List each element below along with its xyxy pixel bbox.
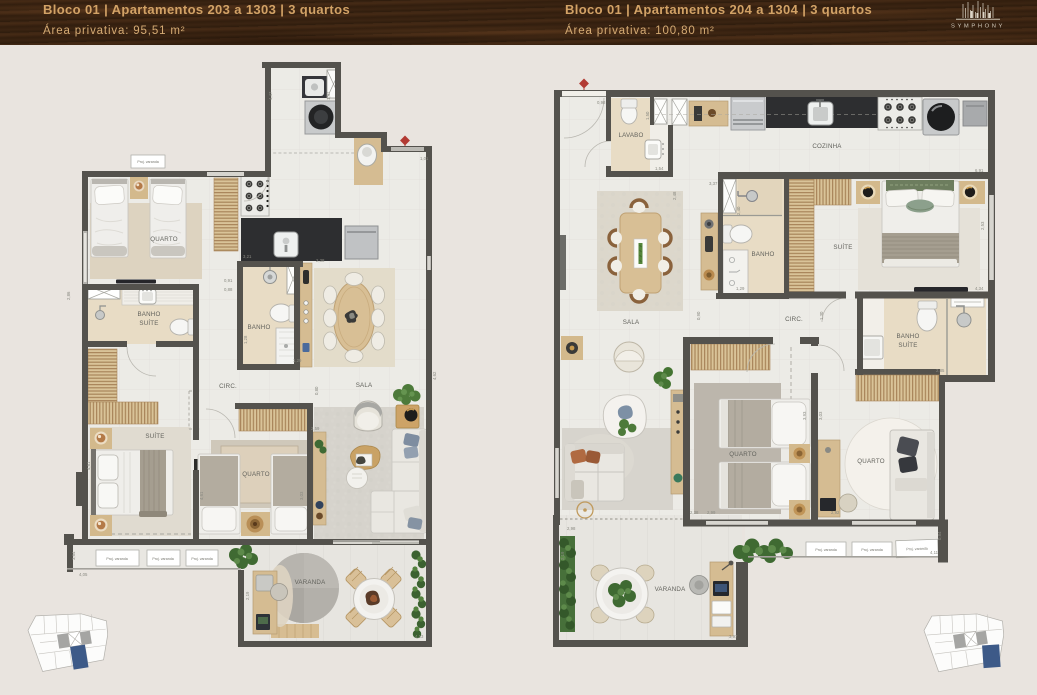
svg-text:4,61: 4,61 [86, 461, 91, 470]
svg-text:2,59: 2,59 [311, 426, 320, 431]
svg-text:SUÍTE: SUÍTE [833, 244, 852, 251]
svg-text:2,19: 2,19 [245, 591, 250, 600]
svg-text:2,19: 2,19 [560, 551, 565, 560]
svg-text:1,54: 1,54 [655, 166, 664, 171]
svg-text:Proj. varanda: Proj. varanda [106, 557, 127, 561]
svg-text:4,47: 4,47 [268, 91, 273, 100]
svg-text:3,37: 3,37 [709, 181, 718, 186]
svg-text:QUARTO: QUARTO [857, 458, 884, 465]
svg-text:3,97: 3,97 [729, 634, 738, 639]
svg-text:1,29: 1,29 [736, 286, 745, 291]
svg-text:SALA: SALA [356, 382, 373, 389]
svg-text:2,85: 2,85 [936, 368, 945, 373]
svg-text:QUARTO: QUARTO [242, 471, 269, 478]
svg-text:2,40: 2,40 [736, 206, 741, 215]
svg-text:3,03: 3,03 [299, 491, 304, 500]
svg-text:SALA: SALA [623, 319, 640, 326]
svg-text:1,01: 1,01 [420, 156, 429, 161]
svg-text:BANHO: BANHO [247, 324, 270, 331]
svg-text:4,11: 4,11 [930, 550, 939, 555]
svg-text:3,21: 3,21 [243, 254, 252, 259]
svg-text:0,80: 0,80 [314, 386, 319, 395]
svg-text:4,13: 4,13 [415, 634, 424, 639]
svg-text:1,28: 1,28 [243, 335, 248, 344]
svg-text:BANHO: BANHO [137, 311, 160, 318]
svg-text:4,62: 4,62 [432, 371, 437, 380]
svg-text:1,30: 1,30 [819, 311, 824, 320]
svg-text:CIRC.: CIRC. [785, 316, 803, 323]
svg-text:2,53: 2,53 [980, 221, 985, 230]
svg-text:1,29: 1,29 [293, 358, 302, 363]
svg-text:Proj. varanda: Proj. varanda [861, 548, 882, 552]
svg-text:2,92: 2,92 [831, 510, 840, 515]
svg-text:Proj. varanda: Proj. varanda [906, 547, 928, 552]
svg-text:3,03: 3,03 [818, 411, 823, 420]
svg-text:2,38: 2,38 [690, 510, 699, 515]
svg-text:QUARTO: QUARTO [150, 236, 177, 243]
svg-text:3,64: 3,64 [71, 551, 76, 560]
svg-text:1,47: 1,47 [326, 91, 331, 100]
svg-text:0,90: 0,90 [696, 311, 701, 320]
svg-text:2,86: 2,86 [66, 291, 71, 300]
svg-text:4,61: 4,61 [199, 491, 204, 500]
svg-text:QUARTO: QUARTO [729, 451, 756, 458]
svg-text:0,88: 0,88 [224, 287, 233, 292]
svg-text:0,84: 0,84 [937, 531, 942, 540]
svg-text:Proj. varanda: Proj. varanda [815, 548, 836, 552]
svg-text:0,98: 0,98 [597, 100, 606, 105]
svg-text:0,91: 0,91 [224, 278, 233, 283]
svg-text:Proj. varanda: Proj. varanda [137, 160, 158, 164]
svg-text:2,48: 2,48 [672, 191, 677, 200]
svg-text:COZINHA: COZINHA [812, 143, 842, 150]
svg-text:6,91: 6,91 [975, 168, 984, 173]
svg-text:Proj. varanda: Proj. varanda [191, 557, 212, 561]
svg-text:VARANDA: VARANDA [295, 579, 327, 586]
svg-text:VARANDA: VARANDA [655, 586, 687, 593]
svg-text:1,50: 1,50 [645, 111, 650, 120]
svg-text:CIRC.: CIRC. [219, 383, 237, 390]
svg-text:2,38: 2,38 [316, 258, 325, 263]
svg-text:BANHO: BANHO [751, 251, 774, 258]
svg-text:3,93: 3,93 [802, 411, 807, 420]
svg-text:4,34: 4,34 [975, 286, 984, 291]
svg-text:SUÍTE: SUÍTE [898, 342, 917, 349]
svg-text:2,99: 2,99 [707, 510, 716, 515]
svg-text:LAVABO: LAVABO [618, 132, 643, 139]
svg-text:2,98: 2,98 [567, 526, 576, 531]
svg-text:BANHO: BANHO [896, 333, 919, 340]
svg-text:4,05: 4,05 [79, 572, 88, 577]
svg-text:SUÍTE: SUÍTE [139, 320, 158, 327]
svg-text:Proj. varanda: Proj. varanda [152, 557, 173, 561]
svg-text:SUÍTE: SUÍTE [145, 433, 164, 440]
